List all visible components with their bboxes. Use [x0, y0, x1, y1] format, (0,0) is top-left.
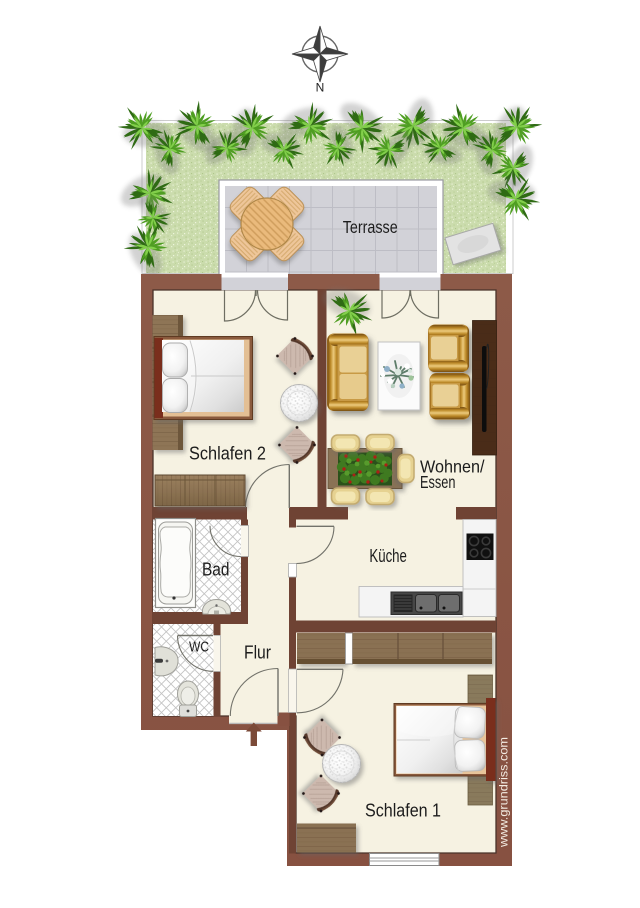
svg-text:Essen: Essen [420, 472, 456, 492]
svg-text:Schlafen 2: Schlafen 2 [189, 444, 266, 464]
svg-text:www.grundriss.com: www.grundriss.com [498, 737, 511, 848]
svg-text:Küche: Küche [369, 546, 407, 566]
svg-text:Flur: Flur [244, 643, 271, 663]
svg-text:Terrasse: Terrasse [343, 217, 398, 237]
svg-text:Schlafen 1: Schlafen 1 [365, 801, 441, 821]
svg-text:Bad: Bad [202, 559, 230, 580]
svg-text:N: N [316, 81, 325, 95]
svg-text:WC: WC [189, 639, 209, 656]
